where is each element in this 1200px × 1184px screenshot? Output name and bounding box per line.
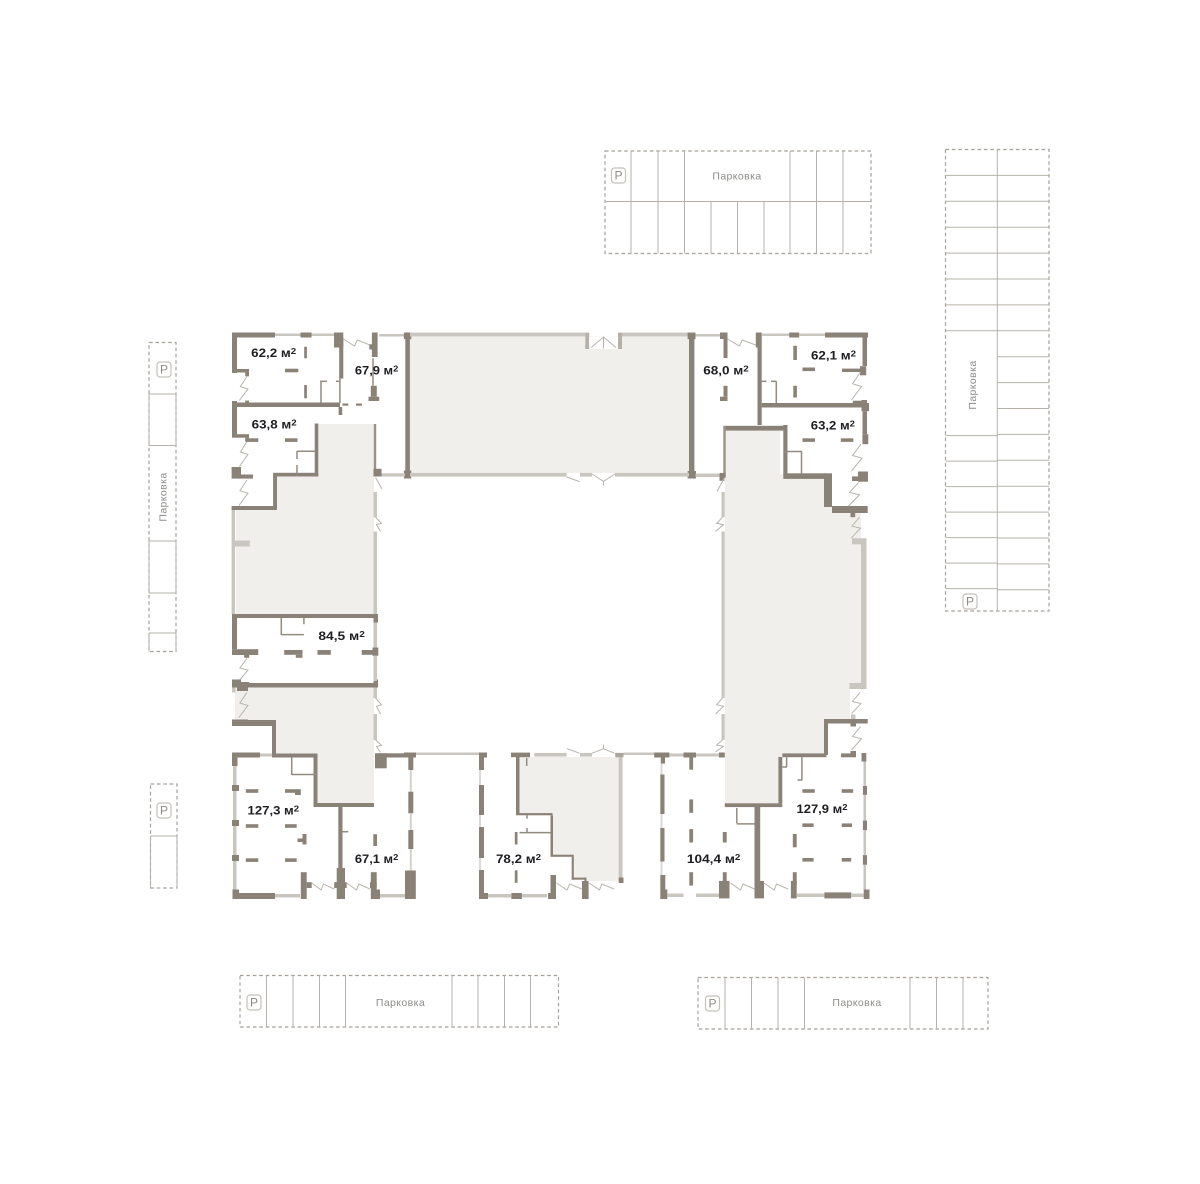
svg-text:62,2 м2: 62,2 м2 [251, 346, 296, 360]
svg-text:P: P [966, 595, 974, 609]
svg-text:68,0 м2: 68,0 м2 [703, 364, 749, 378]
svg-text:Парковка: Парковка [967, 360, 979, 409]
svg-text:Парковка: Парковка [158, 472, 170, 521]
svg-text:Парковка: Парковка [832, 997, 881, 1009]
svg-text:P: P [160, 804, 168, 818]
svg-text:62,1 м2: 62,1 м2 [811, 349, 856, 363]
svg-text:P: P [614, 169, 622, 183]
svg-text:63,2 м2: 63,2 м2 [811, 419, 855, 433]
svg-text:104,4 м2: 104,4 м2 [687, 852, 741, 866]
svg-text:127,9 м2: 127,9 м2 [797, 802, 848, 816]
svg-text:63,8 м2: 63,8 м2 [252, 418, 297, 432]
svg-text:127,3 м2: 127,3 м2 [248, 804, 300, 818]
svg-text:P: P [708, 997, 716, 1011]
svg-text:84,5 м2: 84,5 м2 [318, 629, 365, 643]
svg-text:67,1 м2: 67,1 м2 [355, 852, 399, 866]
svg-text:P: P [160, 363, 168, 377]
svg-text:Парковка: Парковка [376, 997, 425, 1009]
svg-text:78,2 м2: 78,2 м2 [496, 852, 541, 866]
svg-text:67,9 м2: 67,9 м2 [355, 364, 399, 378]
svg-text:P: P [250, 996, 258, 1010]
svg-text:Парковка: Парковка [712, 171, 761, 183]
